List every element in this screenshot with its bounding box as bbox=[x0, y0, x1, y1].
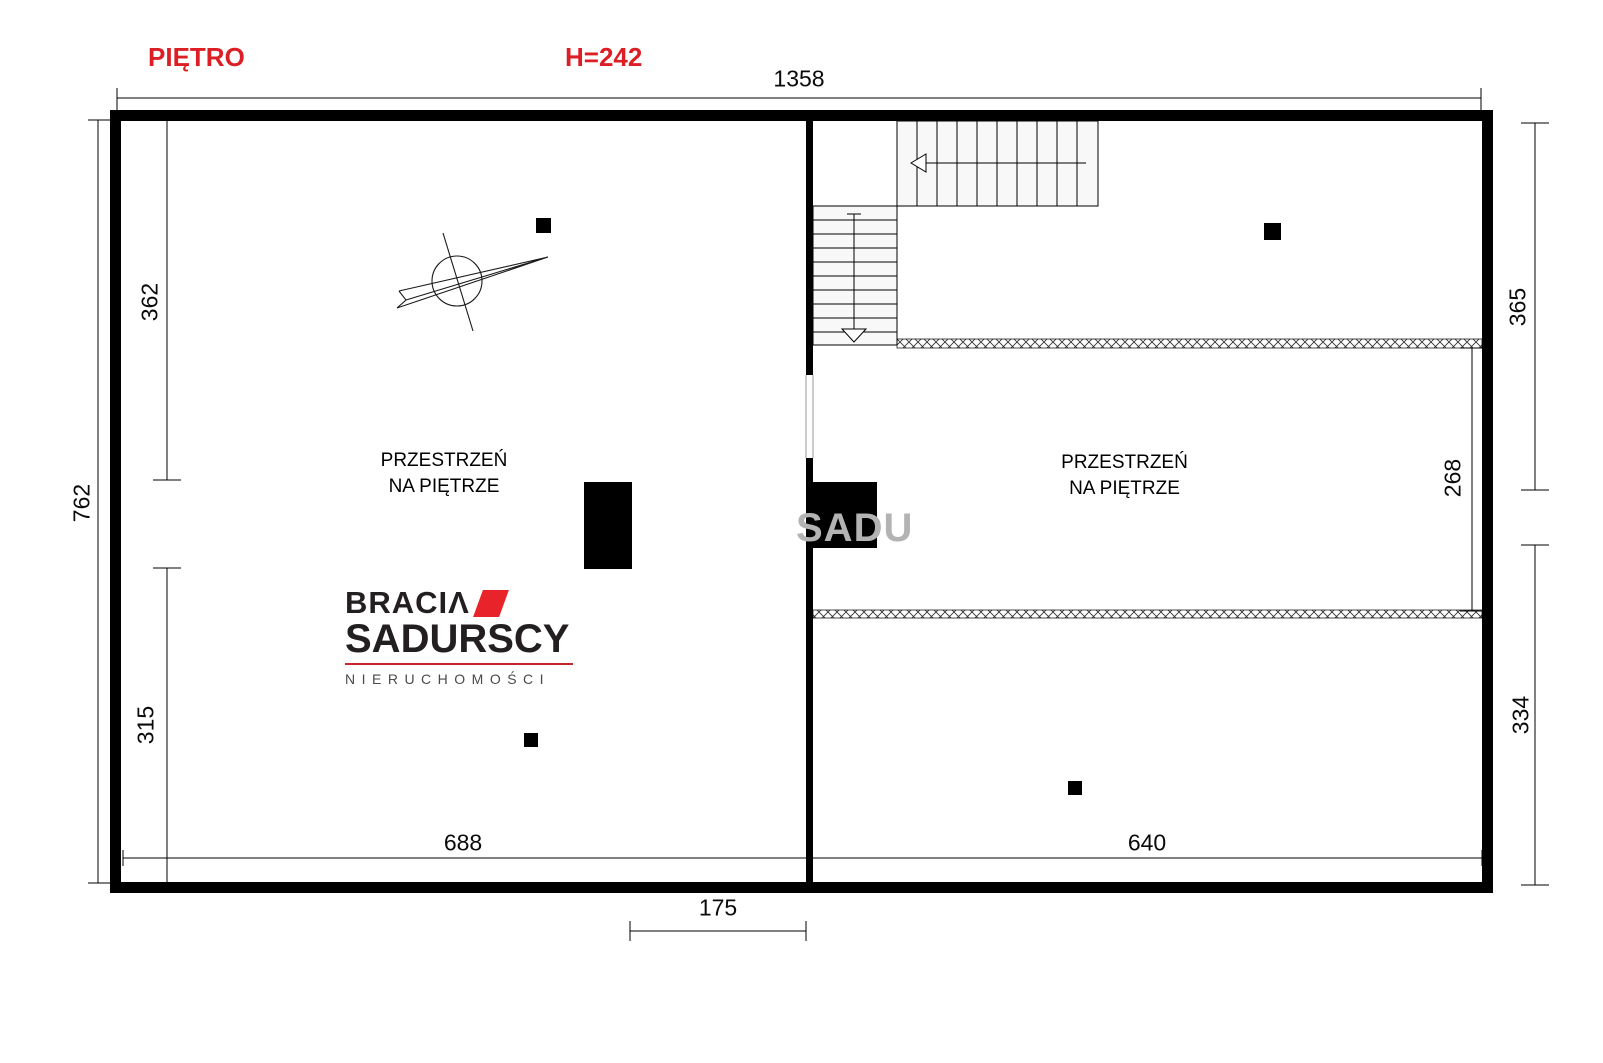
stair-arrow-down bbox=[842, 214, 866, 342]
dim-stair-opening: 175 bbox=[699, 895, 737, 922]
logo-tagline: NIERUCHOMOŚCI bbox=[345, 671, 577, 687]
chimney-block-left bbox=[584, 482, 632, 569]
room-label-left: PRZESTRZEŃ NA PIĘTRZE bbox=[344, 448, 544, 500]
compass-icon bbox=[397, 233, 548, 331]
wall-right bbox=[1482, 110, 1493, 893]
watermark-text: SADU bbox=[796, 506, 913, 551]
dim-right-lower: 334 bbox=[1508, 696, 1535, 734]
dim-left-lower: 315 bbox=[133, 706, 160, 744]
room-label-left-line1: PRZESTRZEŃ bbox=[344, 448, 544, 474]
agency-logo: BRACIΛ SADURSCY NIERUCHOMOŚCI bbox=[345, 588, 577, 687]
door-opening bbox=[806, 375, 813, 458]
wall-middle-upper bbox=[806, 121, 813, 375]
staircase bbox=[813, 121, 1098, 345]
logo-line1: BRACIΛ bbox=[345, 588, 470, 618]
column-marker bbox=[524, 733, 538, 747]
room-label-right: PRZESTRZEŃ NA PIĘTRZE bbox=[1022, 450, 1227, 502]
room-label-right-line2: NA PIĘTRZE bbox=[1022, 476, 1227, 502]
logo-line2: SADURSCY bbox=[345, 618, 577, 660]
dim-right-inner: 268 bbox=[1440, 459, 1467, 497]
room-label-left-line2: NA PIĘTRZE bbox=[344, 474, 544, 500]
logo-divider bbox=[345, 663, 573, 665]
dim-top-width: 1358 bbox=[773, 66, 824, 93]
dim-bottom-right: 640 bbox=[1128, 830, 1166, 857]
floor-plan: PIĘTRO H=242 bbox=[0, 0, 1603, 1063]
wall-bottom bbox=[110, 882, 1493, 893]
stair-arrow-up bbox=[911, 154, 1086, 172]
ceiling-height-label: H=242 bbox=[565, 42, 642, 73]
column-marker bbox=[1068, 781, 1082, 795]
column-marker bbox=[1264, 223, 1281, 240]
dim-left-height: 762 bbox=[69, 484, 96, 522]
dim-right-upper: 365 bbox=[1505, 288, 1532, 326]
column-marker bbox=[536, 218, 551, 233]
wall-top bbox=[110, 110, 1493, 121]
room-label-right-line1: PRZESTRZEŃ bbox=[1022, 450, 1227, 476]
wall-left bbox=[110, 110, 121, 893]
logo-red-flag-icon bbox=[473, 590, 509, 617]
dim-left-upper: 362 bbox=[137, 283, 164, 321]
floor-title: PIĘTRO bbox=[148, 42, 245, 73]
dim-bottom-left: 688 bbox=[444, 830, 482, 857]
